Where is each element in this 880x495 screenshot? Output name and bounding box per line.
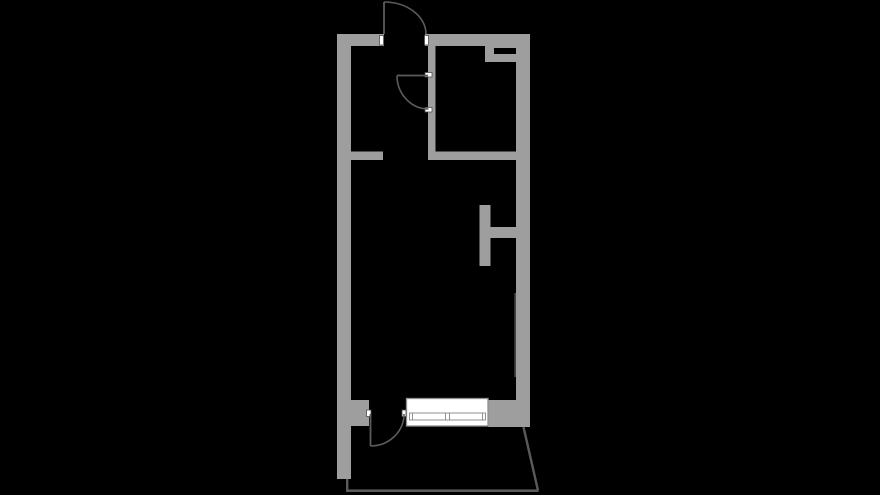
top-wall-right-segment xyxy=(425,34,530,46)
balcony-door-swing-arc xyxy=(371,414,405,446)
vent-shaft-slot xyxy=(494,48,516,54)
entry-door-right-jamb xyxy=(425,36,429,46)
main-window-glazing-bar xyxy=(410,413,486,420)
entry-door-swing-arc xyxy=(384,2,426,34)
balcony-right-diagonal-line xyxy=(524,427,539,491)
bottom-wall-right-block xyxy=(488,400,530,427)
hall-stub-wall xyxy=(351,152,383,161)
floor-plan-svg xyxy=(0,0,880,495)
main-window xyxy=(407,399,489,427)
inner-room-bottom-wall xyxy=(428,152,516,161)
inner-room-left-wall xyxy=(428,46,436,160)
wall-radiator-line xyxy=(514,293,516,377)
right-exterior-wall xyxy=(516,34,530,427)
partition-stub-wall xyxy=(480,205,491,266)
partition-connector-wall xyxy=(490,227,516,238)
floor-plan-screenshot xyxy=(0,0,880,495)
bathroom-door-swing-arc xyxy=(397,76,429,110)
left-exterior-wall xyxy=(337,34,351,479)
entry-door-left-jamb xyxy=(380,36,384,46)
